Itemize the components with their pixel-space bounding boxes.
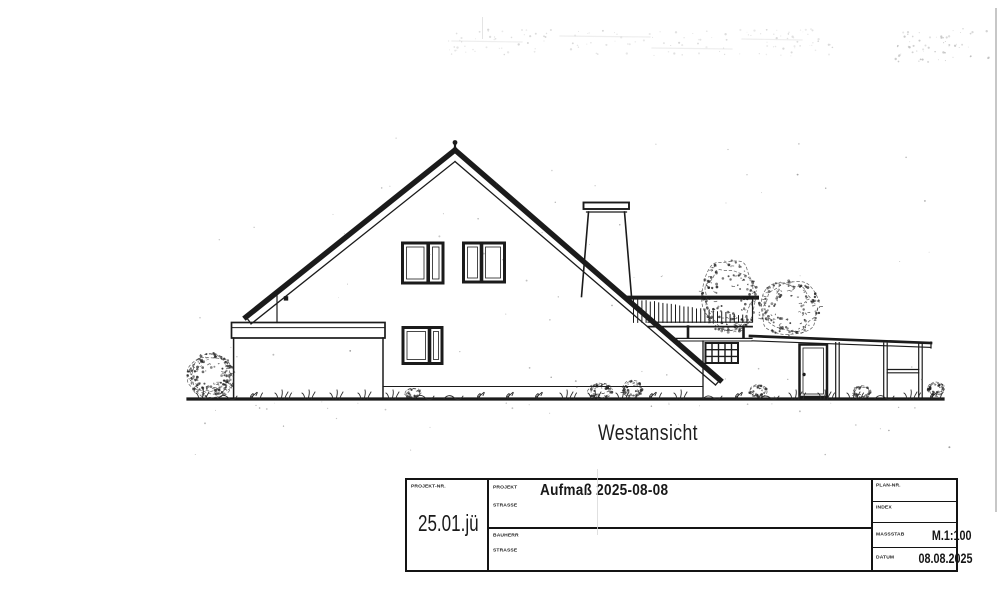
grass-clump-4 <box>749 385 767 398</box>
drawing-caption: Westansicht <box>598 420 698 446</box>
projekt-nr-value: 25.01.jü <box>418 510 479 537</box>
projekt-label: PROJEKT <box>493 484 517 490</box>
entry-door <box>800 345 828 398</box>
ground <box>188 387 943 400</box>
massstab-value: M.1:100 <box>932 528 972 543</box>
scanned-plan-page: Westansicht PROJEKT-NR. 25.01.jü PROJEKT… <box>0 0 1000 607</box>
projekt-nr-label: PROJEKT-NR. <box>411 483 446 489</box>
scan-crease <box>597 469 598 535</box>
carport <box>836 343 923 398</box>
scan-page-edge <box>995 8 997 512</box>
datum-cell: DATUM 08.08.2025 <box>873 548 956 570</box>
scan-crease-top <box>482 17 483 39</box>
datum-value: 08.08.2025 <box>919 551 973 566</box>
plan-nr-cell: PLAN-NR. <box>873 480 956 502</box>
title-block-bauherr-cell: BAUHERR STRASSE <box>489 529 871 570</box>
grass-clump-1 <box>588 383 613 399</box>
title-block-right: PLAN-NR. INDEX MASSSTAB M.1:100 DATUM 08… <box>871 480 956 570</box>
massstab-label: MASSSTAB <box>876 531 904 537</box>
strasse-label-top: STRASSE <box>493 502 517 508</box>
datum-label: DATUM <box>876 554 894 560</box>
title-block-project-cell: PROJEKT Aufmaß 2025-08-08 STRASSE <box>489 480 871 529</box>
door-handle <box>802 373 805 376</box>
grass-clump-2 <box>621 380 643 398</box>
rear-wing <box>676 336 931 398</box>
chimney-cap <box>584 203 630 210</box>
title-block-project-no-cell: PROJEKT-NR. 25.01.jü <box>407 480 489 570</box>
projekt-value: Aufmaß 2025-08-08 <box>540 482 668 500</box>
massstab-cell: MASSSTAB M.1:100 <box>873 523 956 548</box>
window-upper-left <box>403 243 444 283</box>
index-label: INDEX <box>876 504 892 510</box>
window-upper-right <box>464 243 505 282</box>
title-block-middle: PROJEKT Aufmaß 2025-08-08 STRASSE BAUHER… <box>489 480 871 570</box>
bush-left <box>187 353 235 399</box>
scan-smudge-top <box>448 28 990 63</box>
index-cell: INDEX <box>873 502 956 524</box>
grass-clump-5 <box>852 386 871 399</box>
tree-right <box>759 280 823 336</box>
strasse-label-bottom: STRASSE <box>493 547 517 553</box>
plan-nr-label: PLAN-NR. <box>876 482 901 488</box>
bauherr-label: BAUHERR <box>493 532 519 538</box>
lattice-window <box>706 343 739 363</box>
title-block: PROJEKT-NR. 25.01.jü PROJEKT Aufmaß 2025… <box>405 478 958 572</box>
grass-clump-3 <box>404 388 421 398</box>
scan-speckles <box>195 137 951 455</box>
window-lower <box>403 328 442 364</box>
